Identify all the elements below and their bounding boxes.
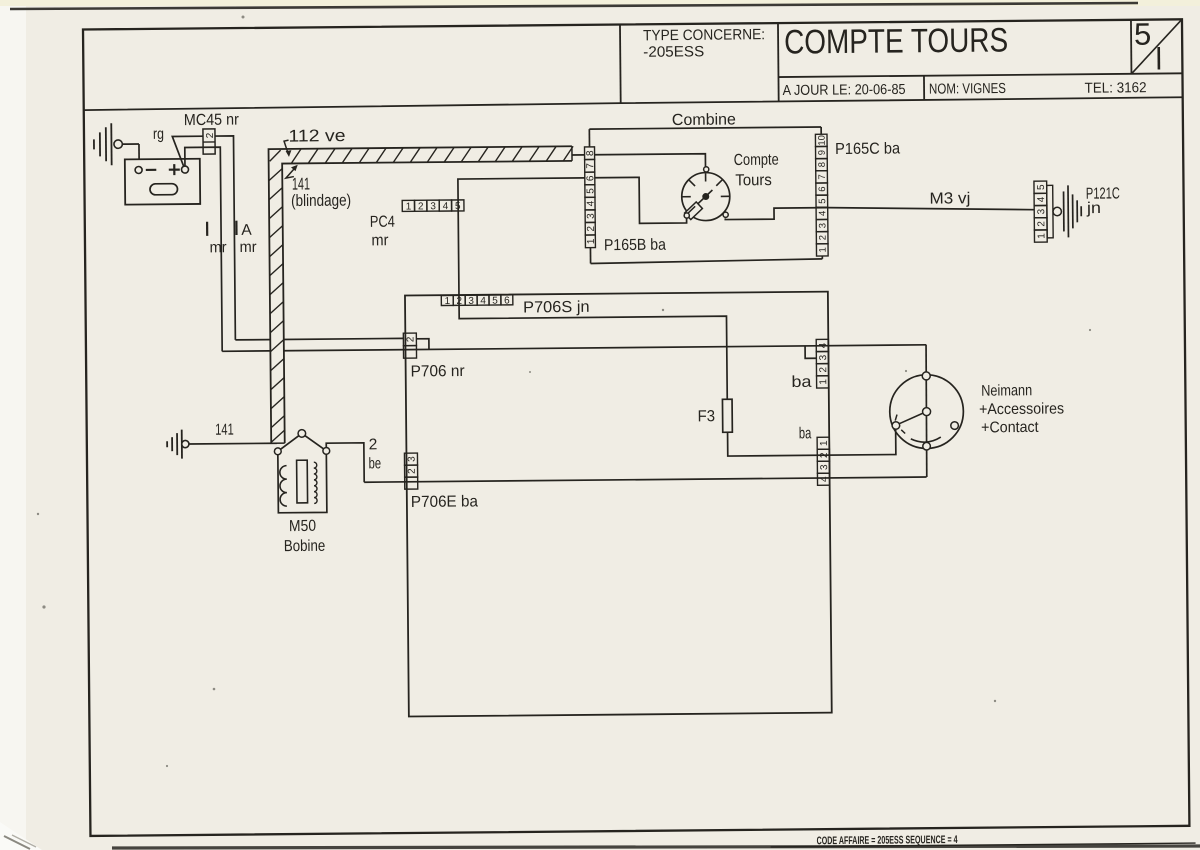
svg-text:2: 2	[407, 468, 418, 474]
svg-text:1: 1	[818, 379, 829, 385]
svg-text:4: 4	[480, 296, 486, 307]
svg-text:P706S jn: P706S jn	[523, 299, 590, 317]
svg-text:8: 8	[585, 150, 596, 156]
svg-text:ba: ba	[799, 425, 812, 442]
svg-text:2: 2	[818, 366, 829, 372]
svg-text:ba: ba	[791, 374, 811, 391]
svg-text:1: 1	[818, 247, 829, 252]
svg-text:Tours: Tours	[735, 172, 772, 189]
svg-text:2: 2	[1036, 221, 1047, 227]
svg-text:4: 4	[818, 342, 829, 348]
svg-text:3: 3	[586, 213, 597, 219]
svg-text:NOM: VIGNES: NOM: VIGNES	[929, 81, 1006, 98]
svg-text:141: 141	[215, 422, 234, 439]
svg-text:1: 1	[1036, 233, 1047, 239]
svg-text:mr: mr	[209, 239, 226, 256]
svg-text:6: 6	[504, 295, 510, 306]
svg-text:3: 3	[817, 223, 828, 228]
svg-text:5: 5	[1134, 17, 1152, 52]
svg-text:3: 3	[818, 354, 829, 360]
svg-text:COMPTE TOURS: COMPTE TOURS	[784, 21, 1008, 61]
svg-text:141: 141	[292, 174, 310, 193]
svg-text:5: 5	[455, 201, 461, 212]
svg-text:8: 8	[817, 162, 828, 167]
svg-text:7: 7	[585, 163, 596, 169]
svg-text:6: 6	[817, 186, 828, 191]
svg-text:A: A	[241, 222, 252, 239]
svg-text:1: 1	[586, 238, 597, 244]
svg-text:MC45 nr: MC45 nr	[184, 112, 240, 130]
svg-text:Bobine: Bobine	[284, 538, 326, 555]
svg-text:4: 4	[586, 200, 597, 206]
svg-text:7: 7	[817, 174, 828, 179]
svg-text:2: 2	[405, 336, 416, 342]
svg-text:3: 3	[1036, 208, 1047, 214]
svg-text:F3: F3	[698, 408, 716, 425]
svg-text:4: 4	[443, 201, 449, 212]
svg-text:6: 6	[585, 175, 596, 181]
svg-text:3: 3	[819, 464, 830, 470]
svg-text:2: 2	[418, 201, 424, 212]
svg-text:P165C ba: P165C ba	[835, 140, 900, 158]
svg-text:Neimann: Neimann	[981, 382, 1032, 399]
svg-text:P165B ba: P165B ba	[604, 237, 666, 255]
svg-text:2: 2	[818, 235, 829, 240]
svg-text:M50: M50	[289, 518, 316, 535]
svg-text:5: 5	[585, 188, 596, 194]
svg-text:+Accessoires: +Accessoires	[979, 400, 1064, 418]
svg-text:+Contact: +Contact	[981, 419, 1039, 437]
svg-text:rg: rg	[153, 126, 164, 143]
svg-text:5: 5	[492, 296, 498, 307]
svg-text:1: 1	[819, 440, 830, 446]
svg-text:(blindage): (blindage)	[291, 192, 351, 211]
svg-text:2: 2	[205, 132, 216, 138]
svg-text:P706 nr: P706 nr	[411, 363, 466, 381]
svg-text:5: 5	[817, 198, 828, 203]
svg-text:4: 4	[819, 476, 830, 482]
svg-text:9: 9	[817, 150, 828, 155]
svg-text:P706E ba: P706E ba	[411, 493, 478, 511]
svg-text:mr: mr	[239, 239, 256, 256]
svg-text:-205ESS: -205ESS	[643, 43, 704, 61]
svg-text:TYPE CONCERNE:: TYPE CONCERNE:	[643, 26, 765, 44]
svg-text:3: 3	[407, 456, 418, 462]
svg-text:2: 2	[369, 436, 378, 453]
svg-text:3: 3	[430, 201, 436, 212]
svg-text:2: 2	[819, 452, 830, 458]
svg-text:4: 4	[1036, 196, 1047, 202]
svg-text:5: 5	[1036, 184, 1047, 190]
svg-text:TEL: 3162: TEL: 3162	[1085, 80, 1147, 97]
svg-text:A JOUR LE: 20-06-85: A JOUR LE: 20-06-85	[783, 82, 906, 99]
svg-text:be: be	[369, 455, 382, 472]
svg-text:3: 3	[468, 296, 474, 307]
svg-text:10: 10	[817, 135, 828, 146]
svg-text:2: 2	[586, 225, 597, 231]
svg-text:PC4: PC4	[370, 214, 395, 231]
svg-text:1: 1	[444, 296, 450, 307]
svg-text:mr: mr	[371, 232, 389, 249]
svg-text:Combine: Combine	[672, 111, 736, 129]
svg-text:4: 4	[817, 211, 828, 216]
svg-text:M3 vj: M3 vj	[929, 190, 970, 207]
svg-text:Compte: Compte	[734, 152, 779, 169]
svg-text:112 ve: 112 ve	[288, 126, 345, 146]
svg-text:2: 2	[456, 296, 462, 307]
svg-text:jn: jn	[1086, 200, 1101, 217]
svg-text:1: 1	[406, 201, 412, 212]
